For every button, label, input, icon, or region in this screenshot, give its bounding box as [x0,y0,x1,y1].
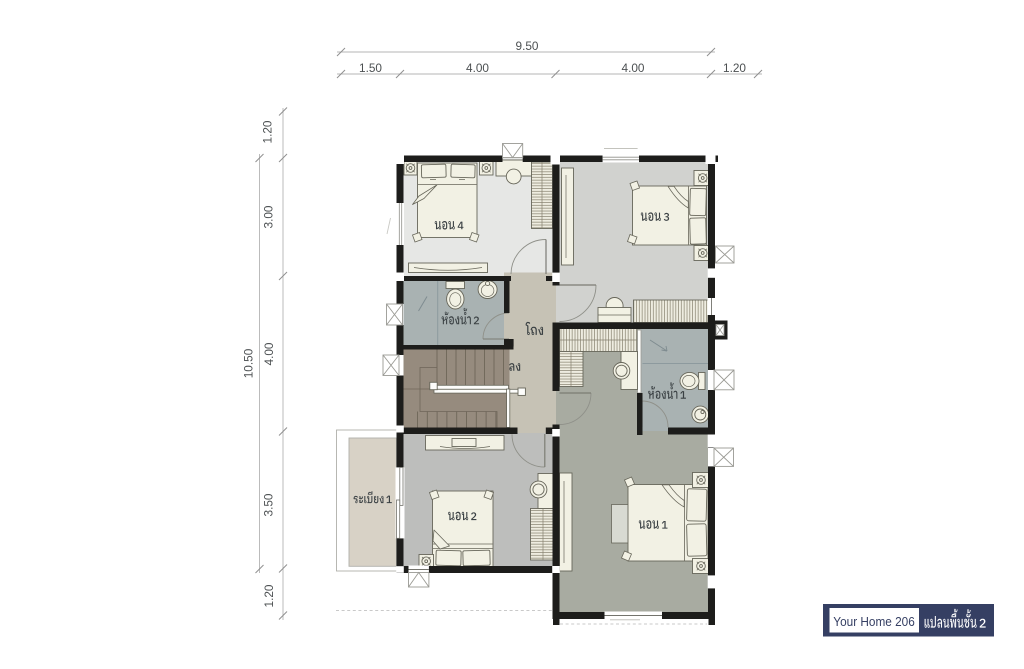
svg-text:4.00: 4.00 [466,61,489,75]
svg-text:1.20: 1.20 [261,120,275,143]
svg-text:1.20: 1.20 [262,584,276,607]
svg-text:3.00: 3.00 [262,205,276,228]
svg-text:10.50: 10.50 [242,348,256,378]
svg-text:3.50: 3.50 [262,493,276,516]
svg-text:4.00: 4.00 [262,342,276,365]
svg-text:1.20: 1.20 [723,61,746,75]
svg-text:4.00: 4.00 [622,61,645,75]
svg-text:1.50: 1.50 [359,61,382,75]
svg-text:Your Home 206: Your Home 206 [833,614,915,629]
svg-text:9.50: 9.50 [516,39,539,53]
